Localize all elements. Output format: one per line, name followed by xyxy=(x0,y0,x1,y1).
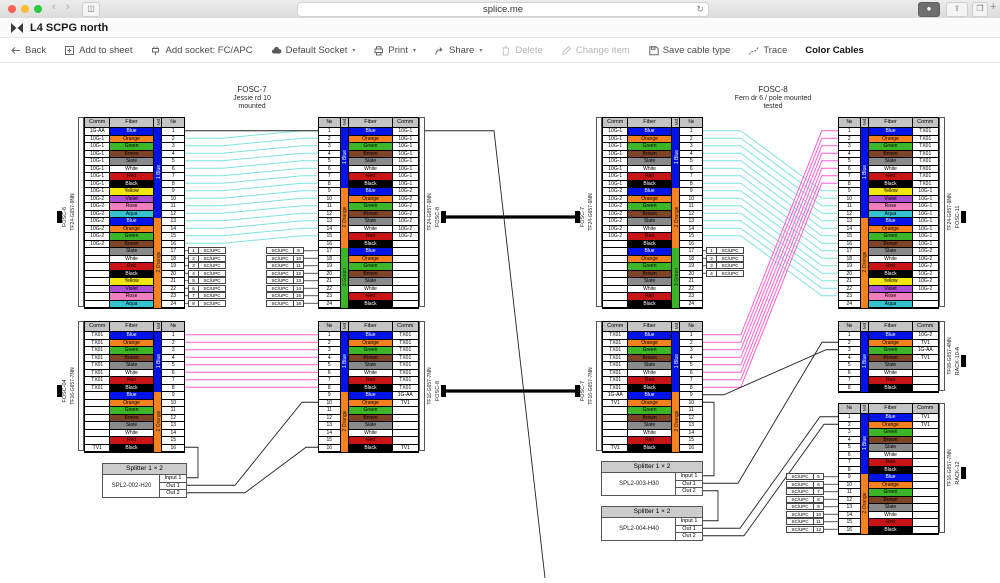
splitter-SPL2-002-H20[interactable]: Splitter 1 × 2SPL2-002-H20Input 1Out 1Ou… xyxy=(102,463,187,498)
fiber-row[interactable]: 1BlueTV1 xyxy=(839,414,938,422)
fiber-row[interactable]: 1G-AABlue9 xyxy=(603,392,702,400)
splitter-SPL2-004-H40[interactable]: Splitter 1 × 2SPL2-004-H40Input 1Out 1Ou… xyxy=(601,506,703,541)
fiber-row[interactable]: 19Red10G-2 xyxy=(839,263,938,271)
splice-diagram-canvas: FOSC-7Jessie rd 10mountedFOSC-8Fern dr 6… xyxy=(0,0,1000,583)
socket-scupc-15[interactable]: SC/UPC15 xyxy=(266,292,304,299)
fiber-row[interactable]: 10G-2Green15 xyxy=(85,233,184,241)
fiber-row[interactable]: 12Brown xyxy=(839,497,938,505)
fiber-row[interactable]: 1BlueTX01 xyxy=(319,332,418,340)
fiber-cell: Violet xyxy=(869,196,912,204)
wire xyxy=(703,342,838,483)
fiber-cell: Blue xyxy=(869,474,912,482)
fiber-row[interactable]: Red15 xyxy=(603,437,702,445)
fiber-row[interactable]: 1Blue10G-1 xyxy=(319,128,418,136)
fiber-row[interactable]: TX01Green3 xyxy=(603,347,702,355)
fiber-row[interactable]: 4Brown xyxy=(839,437,938,445)
comm-cell: 10G-1 xyxy=(85,151,110,159)
socket-scupc-6[interactable]: SC/UPC6 xyxy=(786,481,824,488)
num-cell: 10 xyxy=(839,482,861,490)
socket-number: 16 xyxy=(293,301,303,306)
fiber-row[interactable]: TX01Slate5 xyxy=(85,362,184,370)
fiber-cell: Green xyxy=(869,429,912,437)
socket-number: 2 xyxy=(189,256,199,261)
num-cell: 6 xyxy=(839,452,861,460)
header-comm: Comm xyxy=(85,118,110,128)
fiber-row[interactable]: 9Blue1G-AA xyxy=(319,392,418,400)
fiber-row[interactable]: 7Red xyxy=(839,459,938,467)
fiber-row[interactable]: 16Black xyxy=(839,527,938,535)
fiber-cell: Yellow xyxy=(869,188,912,196)
splitter-port-out2[interactable]: Out 2 xyxy=(675,533,702,541)
cable-label: TF24-G657-9NN xyxy=(946,117,954,307)
fiber-row[interactable]: Slate13 xyxy=(603,422,702,430)
fiber-row[interactable]: 7Red xyxy=(839,377,938,385)
fiber-row[interactable]: Brown12 xyxy=(603,415,702,423)
fiber-row[interactable]: 8Black xyxy=(839,467,938,475)
num-cell: 11 xyxy=(162,203,184,211)
fiber-row[interactable]: TX01Black8 xyxy=(603,385,702,393)
fiber-row[interactable]: TX01Orange2 xyxy=(85,340,184,348)
fiber-row[interactable]: 15Red10G-2 xyxy=(319,233,418,241)
fiber-row[interactable]: 10G-1Brown4 xyxy=(85,151,184,159)
header-md: Md xyxy=(155,321,163,331)
fiber-row[interactable]: 8Black10G-1 xyxy=(319,181,418,189)
fiber-cell: Yellow xyxy=(869,278,912,286)
fiber-row[interactable]: 10G-2Orange10 xyxy=(603,196,702,204)
header-num: № xyxy=(680,118,702,128)
fiber-cell: Blue xyxy=(628,188,671,196)
splitter-port-input1[interactable]: Input 1 xyxy=(675,473,702,481)
fiber-row[interactable]: TX01White6 xyxy=(603,370,702,378)
fiber-row[interactable]: 6White xyxy=(839,370,938,378)
socket-scupc-1[interactable]: 1SC/UPC xyxy=(188,247,226,254)
socket-type-label: SC/UPC xyxy=(267,278,293,283)
fiber-row[interactable]: 4BrownTX01 xyxy=(839,151,938,159)
num-cell: 1 xyxy=(162,128,184,136)
fiber-row[interactable]: 23Rose xyxy=(839,293,938,301)
fiber-row[interactable]: 10G-1Orange2 xyxy=(85,136,184,144)
fiber-row[interactable]: TX01Slate5 xyxy=(603,362,702,370)
num-cell: 3 xyxy=(162,347,184,355)
fiber-row[interactable]: TX01Brown4 xyxy=(85,355,184,363)
fiber-row[interactable]: 8BlackTX01 xyxy=(319,385,418,393)
fiber-row[interactable]: 10G-1White6 xyxy=(85,166,184,174)
fiber-row[interactable]: 10G-2Brown12 xyxy=(603,211,702,219)
fiber-row[interactable]: Black20 xyxy=(85,271,184,279)
fiber-row[interactable]: 5Slate xyxy=(839,444,938,452)
fiber-row[interactable]: White14 xyxy=(603,430,702,438)
socket-scupc-7[interactable]: 7SC/UPC xyxy=(188,292,226,299)
num-cell: 20 xyxy=(162,271,184,279)
fiber-cell: Orange xyxy=(349,340,392,348)
fiber-row[interactable]: 4BrownTX01 xyxy=(319,355,418,363)
fiber-cell: Black xyxy=(110,271,153,279)
socket-scupc-5[interactable]: SC/UPC5 xyxy=(786,473,824,480)
fiber-cell: Orange xyxy=(110,136,153,144)
fiber-row[interactable]: 22Violet10G-2 xyxy=(839,286,938,294)
fiber-row[interactable]: Blue9 xyxy=(85,392,184,400)
comm-cell: TX01 xyxy=(393,377,418,385)
fiber-row[interactable]: Brown12 xyxy=(85,415,184,423)
fiber-row[interactable]: 10G-2Orange14 xyxy=(85,226,184,234)
socket-scupc-2[interactable]: 2SC/UPC xyxy=(188,255,226,262)
fiber-row[interactable]: 6WhiteTX01 xyxy=(319,370,418,378)
closure-title: FOSC-8Fern dr 6 / pole mountedtested xyxy=(703,86,843,112)
num-cell: 15 xyxy=(680,233,702,241)
fiber-row[interactable]: 10G-2White14 xyxy=(603,226,702,234)
num-cell: 15 xyxy=(319,233,341,241)
num-cell: 19 xyxy=(162,263,184,271)
fiber-row[interactable]: TX01Orange2 xyxy=(603,340,702,348)
fiber-row[interactable]: 10G-1Green3 xyxy=(85,143,184,151)
fiber-row[interactable]: 22White xyxy=(319,286,418,294)
socket-scupc-9[interactable]: SC/UPC9 xyxy=(266,247,304,254)
fiber-row[interactable]: 10G-2Violet10 xyxy=(85,196,184,204)
tube-label: 2 Orange xyxy=(155,391,163,451)
fiber-row[interactable]: 5SlateTX01 xyxy=(839,158,938,166)
socket-scupc-3[interactable]: 3SC/UPC xyxy=(188,262,226,269)
fiber-row[interactable]: White22 xyxy=(603,286,702,294)
fiber-row[interactable]: 2OrangeTX01 xyxy=(839,136,938,144)
splitter-port-out1[interactable]: Out 1 xyxy=(159,483,186,491)
fiber-row[interactable]: 1G-AABlue1 xyxy=(85,128,184,136)
fiber-row[interactable]: 12Aqua10G-1 xyxy=(839,211,938,219)
fiber-row[interactable]: 13Slate xyxy=(839,504,938,512)
tube-label: 2 Orange xyxy=(673,187,681,247)
fiber-row[interactable]: 10G-1Red7 xyxy=(603,173,702,181)
fiber-row[interactable]: 7RedTX01 xyxy=(319,377,418,385)
fiber-row[interactable]: 7Red10G-1 xyxy=(319,173,418,181)
fiber-row[interactable]: 6White xyxy=(839,452,938,460)
num-cell: 9 xyxy=(162,392,184,400)
header-md: Md xyxy=(861,321,869,331)
fiber-row[interactable]: 14Orange10G-1 xyxy=(839,226,938,234)
fiber-row[interactable]: 10G-2Rose11 xyxy=(85,203,184,211)
splitter-port-input1[interactable]: Input 1 xyxy=(675,518,702,526)
fiber-row[interactable]: 4BrownTV1 xyxy=(839,355,938,363)
fiber-row[interactable]: 1Blue10G-2 xyxy=(839,332,938,340)
tube-label: 2 Orange xyxy=(155,217,163,307)
fiber-row[interactable]: Orange18 xyxy=(603,256,702,264)
fiber-row[interactable]: 3Green1G-AA xyxy=(839,347,938,355)
fiber-row[interactable]: 4Brown10G-1 xyxy=(319,151,418,159)
num-cell: 6 xyxy=(162,166,184,174)
fiber-row[interactable]: 14White10G-2 xyxy=(319,226,418,234)
socket-scupc-16[interactable]: SC/UPC16 xyxy=(266,300,304,307)
num-cell: 20 xyxy=(319,271,341,279)
fiber-cell: Brown xyxy=(628,415,671,423)
fiber-row[interactable]: 1BlueTX01 xyxy=(839,128,938,136)
fiber-row[interactable]: 10G-1Brown4 xyxy=(603,151,702,159)
fiber-row[interactable]: 24Aqua xyxy=(839,301,938,309)
fiber-cell: Blue xyxy=(628,332,671,340)
num-cell: 2 xyxy=(162,340,184,348)
fiber-row[interactable]: 19Green xyxy=(319,263,418,271)
num-cell: 23 xyxy=(162,293,184,301)
fiber-row[interactable]: 2OrangeTX01 xyxy=(319,340,418,348)
fiber-cell: Red xyxy=(869,459,912,467)
comm-cell xyxy=(85,293,110,301)
fiber-row[interactable]: 16Black xyxy=(319,241,418,249)
socket-scupc-4[interactable]: 4SC/UPC xyxy=(188,270,226,277)
fiber-row[interactable]: 23Red xyxy=(319,293,418,301)
fiber-row[interactable]: 13Slate10G-2 xyxy=(319,218,418,226)
num-cell: 17 xyxy=(680,248,702,256)
fiber-row[interactable]: Black16 xyxy=(603,241,702,249)
fiber-row[interactable]: TX01White6 xyxy=(85,370,184,378)
fiber-row[interactable]: 9Blue10G-2 xyxy=(319,188,418,196)
fiber-row[interactable]: 10G-1Red7 xyxy=(85,173,184,181)
num-cell: 23 xyxy=(839,293,861,301)
socket-scupc-13[interactable]: SC/UPC13 xyxy=(266,277,304,284)
fiber-cell: Blue xyxy=(628,248,671,256)
fiber-row[interactable]: Slate17 xyxy=(85,248,184,256)
fiber-row[interactable]: White18 xyxy=(85,256,184,264)
wire xyxy=(187,447,318,493)
fiber-row[interactable]: 11Green xyxy=(839,489,938,497)
fiber-row[interactable]: 16Brown10G-1 xyxy=(839,241,938,249)
fiber-row[interactable]: TX01Red7 xyxy=(603,377,702,385)
socket-scupc-6[interactable]: 6SC/UPC xyxy=(188,285,226,292)
fiber-row[interactable]: 11Green10G-2 xyxy=(319,203,418,211)
fiber-row[interactable]: 10G-1Green3 xyxy=(603,143,702,151)
fiber-row[interactable]: 10Orange xyxy=(839,482,938,490)
fiber-row[interactable]: 13Blue10G-1 xyxy=(839,218,938,226)
fiber-row[interactable]: 5Slate xyxy=(839,362,938,370)
fiber-row[interactable]: 21Slate xyxy=(319,278,418,286)
closure-title-line: tested xyxy=(703,103,843,112)
fiber-row[interactable]: 2Orange10G-1 xyxy=(319,136,418,144)
comm-cell xyxy=(913,497,938,505)
fiber-row[interactable]: Red15 xyxy=(85,437,184,445)
fiber-row[interactable]: 10Violet10G-1 xyxy=(839,196,938,204)
fiber-cell: Blue xyxy=(628,128,671,136)
socket-scupc-14[interactable]: SC/UPC14 xyxy=(266,285,304,292)
num-cell: 1 xyxy=(680,332,702,340)
fiber-row[interactable]: 10G-1Slate5 xyxy=(603,158,702,166)
closure-title-line: mounted xyxy=(182,103,322,112)
fiber-row[interactable]: 10G-2Brown16 xyxy=(85,241,184,249)
socket-scupc-7[interactable]: SC/UPC7 xyxy=(786,488,824,495)
fiber-row[interactable]: 3GreenTX01 xyxy=(839,143,938,151)
comm-cell xyxy=(603,293,628,301)
fiber-row[interactable]: 2OrangeTV1 xyxy=(839,340,938,348)
socket-scupc-8[interactable]: SC/UPC8 xyxy=(786,496,824,503)
fiber-cell: Brown xyxy=(869,437,912,445)
comm-cell: TX01 xyxy=(85,355,110,363)
fiber-cell: White xyxy=(349,166,392,174)
fiber-row[interactable]: 21Yellow10G-2 xyxy=(839,278,938,286)
socket-scupc-3[interactable]: 3SC/UPC xyxy=(706,262,744,269)
fiber-row[interactable]: 20Brown xyxy=(319,271,418,279)
fiber-row[interactable]: 3Green xyxy=(839,429,938,437)
comm-cell: TX01 xyxy=(393,332,418,340)
socket-scupc-11[interactable]: SC/UPC11 xyxy=(786,518,824,525)
fiber-row[interactable]: 18Orange xyxy=(319,256,418,264)
fiber-row[interactable]: Slate13 xyxy=(85,422,184,430)
socket-scupc-1[interactable]: 1SC/UPC xyxy=(706,247,744,254)
fiber-row[interactable]: Orange10 xyxy=(85,400,184,408)
fiber-row[interactable]: 16BlackTV1 xyxy=(319,445,418,453)
fiber-row[interactable]: 8BlackTX01 xyxy=(839,181,938,189)
fiber-row[interactable]: 6WhiteTX01 xyxy=(839,166,938,174)
num-cell: 10 xyxy=(680,196,702,204)
fiber-row[interactable]: 10G-2Red15 xyxy=(603,233,702,241)
fiber-row[interactable]: 14White xyxy=(319,430,418,438)
fiber-row[interactable]: 10G-1Blue1 xyxy=(603,128,702,136)
fiber-row[interactable]: 13Slate xyxy=(319,422,418,430)
fiber-row[interactable]: TX01Green3 xyxy=(85,347,184,355)
fiber-row[interactable]: 20Black10G-2 xyxy=(839,271,938,279)
fiber-row[interactable]: 6White10G-1 xyxy=(319,166,418,174)
fiber-row[interactable]: 12Brown xyxy=(319,415,418,423)
splitter-title: Splitter 1 × 2 xyxy=(602,507,702,518)
socket-scupc-10[interactable]: SC/UPC10 xyxy=(266,255,304,262)
fiber-row[interactable]: 10G-1Black8 xyxy=(603,181,702,189)
splitter-port-input1[interactable]: Input 1 xyxy=(159,475,186,483)
socket-scupc-11[interactable]: SC/UPC11 xyxy=(266,262,304,269)
fiber-row[interactable]: TX01Blue1 xyxy=(603,332,702,340)
fiber-row[interactable]: TX01Black8 xyxy=(85,385,184,393)
num-cell: 2 xyxy=(839,136,861,144)
fiber-row[interactable]: 10OrangeTV1 xyxy=(319,400,418,408)
fiber-row[interactable]: 10G-2Green11 xyxy=(603,203,702,211)
fiber-row[interactable]: 10G-2Blue13 xyxy=(85,218,184,226)
fiber-row[interactable]: Rose23 xyxy=(85,293,184,301)
fiber-row[interactable]: 17Slate10G-2 xyxy=(839,248,938,256)
fiber-row[interactable]: White14 xyxy=(85,430,184,438)
fiber-cell: Slate xyxy=(628,218,671,226)
fiber-cell: Slate xyxy=(349,422,392,430)
fiber-row[interactable]: Green11 xyxy=(603,407,702,415)
fiber-row[interactable]: TV1Orange10 xyxy=(603,400,702,408)
fiber-row[interactable]: Brown20 xyxy=(603,271,702,279)
socket-scupc-2[interactable]: 2SC/UPC xyxy=(706,255,744,262)
fiber-row[interactable]: 2OrangeTV1 xyxy=(839,422,938,430)
comm-cell: TX01 xyxy=(393,347,418,355)
num-cell: 14 xyxy=(319,226,341,234)
comm-cell xyxy=(393,415,418,423)
fiber-row[interactable]: 14White xyxy=(839,512,938,520)
comm-cell: 10G-2 xyxy=(85,218,110,226)
fiber-row[interactable]: 11Green xyxy=(319,407,418,415)
fiber-row[interactable]: Green11 xyxy=(85,407,184,415)
fiber-row[interactable]: 3GreenTX01 xyxy=(319,347,418,355)
fiber-row[interactable]: Violet22 xyxy=(85,286,184,294)
socket-scupc-9[interactable]: SC/UPC9 xyxy=(786,503,824,510)
fiber-row[interactable]: Black24 xyxy=(603,301,702,309)
fiber-row[interactable]: Aqua24 xyxy=(85,301,184,309)
splitter-port-out1[interactable]: Out 1 xyxy=(675,481,702,489)
fiber-row[interactable]: 12Brown10G-2 xyxy=(319,211,418,219)
fiber-row[interactable]: 15Green10G-1 xyxy=(839,233,938,241)
fiber-cell: Slate xyxy=(349,278,392,286)
fiber-row[interactable]: 11Rose10G-1 xyxy=(839,203,938,211)
fiber-row[interactable]: 15Red xyxy=(319,437,418,445)
fiber-row[interactable]: 10G-1Yellow9 xyxy=(85,188,184,196)
fiber-row[interactable]: 10G-2Aqua12 xyxy=(85,211,184,219)
fiber-row[interactable]: TX01Blue1 xyxy=(85,332,184,340)
comm-cell: 10G-1 xyxy=(393,166,418,174)
socket-scupc-10[interactable]: SC/UPC10 xyxy=(786,511,824,518)
fiber-row[interactable]: Red23 xyxy=(603,293,702,301)
fiber-row[interactable]: Green19 xyxy=(603,263,702,271)
fiber-row[interactable]: 7RedTX01 xyxy=(839,173,938,181)
fiber-row[interactable]: 10G-1White6 xyxy=(603,166,702,174)
fiber-row[interactable]: 10Orange10G-2 xyxy=(319,196,418,204)
comm-cell xyxy=(913,377,938,385)
socket-scupc-12[interactable]: SC/UPC12 xyxy=(786,526,824,533)
socket-scupc-8[interactable]: 8SC/UPC xyxy=(188,300,226,307)
fiber-row[interactable]: TX01Red7 xyxy=(85,377,184,385)
header-num: № xyxy=(839,404,861,414)
fiber-cell: Black xyxy=(349,241,392,249)
fiber-row[interactable]: Slate21 xyxy=(603,278,702,286)
comm-cell: 10G-2 xyxy=(393,218,418,226)
splitter-SPL2-003-H30[interactable]: Splitter 1 × 2SPL2-003-H30Input 1Out 1Ou… xyxy=(601,461,703,496)
socket-type-label: SC/UPC xyxy=(787,527,813,532)
fiber-row[interactable]: TX01Brown4 xyxy=(603,355,702,363)
fiber-cell: Orange xyxy=(349,400,392,408)
fiber-row[interactable]: TV1Black16 xyxy=(603,445,702,453)
fiber-row[interactable]: Blue17 xyxy=(603,248,702,256)
fiber-row[interactable]: TV1Black16 xyxy=(85,445,184,453)
socket-scupc-12[interactable]: SC/UPC12 xyxy=(266,270,304,277)
num-cell: 23 xyxy=(680,293,702,301)
fiber-row[interactable]: 3Green10G-1 xyxy=(319,143,418,151)
fiber-row[interactable]: 8Black xyxy=(839,385,938,393)
fiber-row[interactable]: 5SlateTX01 xyxy=(319,362,418,370)
fiber-row[interactable]: 24Black xyxy=(319,301,418,309)
fiber-row[interactable]: Yellow21 xyxy=(85,278,184,286)
comm-cell: 10G-1 xyxy=(913,226,938,234)
fiber-row[interactable]: 10G-1Slate5 xyxy=(85,158,184,166)
splitter-port-out2[interactable]: Out 2 xyxy=(675,488,702,496)
fiber-row[interactable]: 10G-2Slate13 xyxy=(603,218,702,226)
socket-scupc-4[interactable]: 4SC/UPC xyxy=(706,270,744,277)
fiber-row[interactable]: 17Blue xyxy=(319,248,418,256)
comm-cell: 10G-1 xyxy=(393,136,418,144)
fiber-row[interactable]: 10G-1Orange2 xyxy=(603,136,702,144)
fiber-row[interactable]: 15Red xyxy=(839,519,938,527)
comm-cell: 10G-2 xyxy=(913,271,938,279)
fiber-row[interactable]: 5Slate10G-1 xyxy=(319,158,418,166)
socket-type-label: SC/UPC xyxy=(199,256,225,261)
fiber-row[interactable]: 9Yellow10G-1 xyxy=(839,188,938,196)
fiber-cell: Green xyxy=(349,347,392,355)
num-cell: 21 xyxy=(839,278,861,286)
fiber-cell: Red xyxy=(628,437,671,445)
num-cell: 4 xyxy=(839,355,861,363)
splitter-port-out1[interactable]: Out 1 xyxy=(675,526,702,534)
fiber-row[interactable]: Red19 xyxy=(85,263,184,271)
fiber-row[interactable]: 10G-1Black8 xyxy=(85,181,184,189)
socket-scupc-5[interactable]: 5SC/UPC xyxy=(188,277,226,284)
fiber-cell: Orange xyxy=(110,226,153,234)
comm-cell xyxy=(603,278,628,286)
wire xyxy=(185,146,318,154)
fiber-row[interactable]: 18White10G-2 xyxy=(839,256,938,264)
wire xyxy=(185,131,318,139)
fiber-cell: Blue xyxy=(349,188,392,196)
fiber-row[interactable]: 10G-2Blue9 xyxy=(603,188,702,196)
splitter-port-out2[interactable]: Out 2 xyxy=(159,490,186,498)
table-header-row: №FiberComm xyxy=(319,118,418,128)
fiber-cell: Green xyxy=(869,347,912,355)
fiber-row[interactable]: 9Blue xyxy=(839,474,938,482)
num-cell: 8 xyxy=(680,181,702,189)
cable-bracket xyxy=(78,117,84,307)
